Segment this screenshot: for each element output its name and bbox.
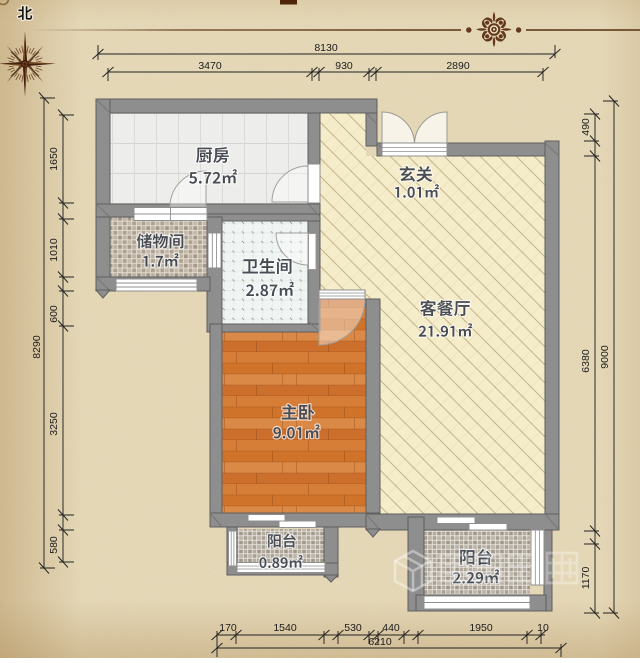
svg-text:1650: 1650 <box>48 147 60 171</box>
svg-text:8130: 8130 <box>314 42 338 54</box>
svg-text:3470: 3470 <box>198 60 222 72</box>
svg-text:930: 930 <box>335 60 353 72</box>
svg-text:9000: 9000 <box>599 345 611 369</box>
svg-text:530: 530 <box>344 622 362 634</box>
svg-text:6380: 6380 <box>580 349 592 373</box>
svg-text:3250: 3250 <box>48 412 60 436</box>
svg-text:580: 580 <box>48 536 60 554</box>
svg-text:10: 10 <box>537 622 549 634</box>
svg-text:1950: 1950 <box>469 622 493 634</box>
svg-text:1010: 1010 <box>48 238 60 262</box>
svg-text:440: 440 <box>382 622 400 634</box>
svg-text:600: 600 <box>48 305 60 323</box>
svg-text:1170: 1170 <box>580 567 592 590</box>
svg-text:2890: 2890 <box>446 60 470 72</box>
svg-text:8290: 8290 <box>31 335 43 359</box>
svg-text:170: 170 <box>219 622 237 634</box>
svg-text:490: 490 <box>580 118 592 136</box>
svg-text:1540: 1540 <box>273 622 297 634</box>
svg-text:6210: 6210 <box>368 636 392 648</box>
